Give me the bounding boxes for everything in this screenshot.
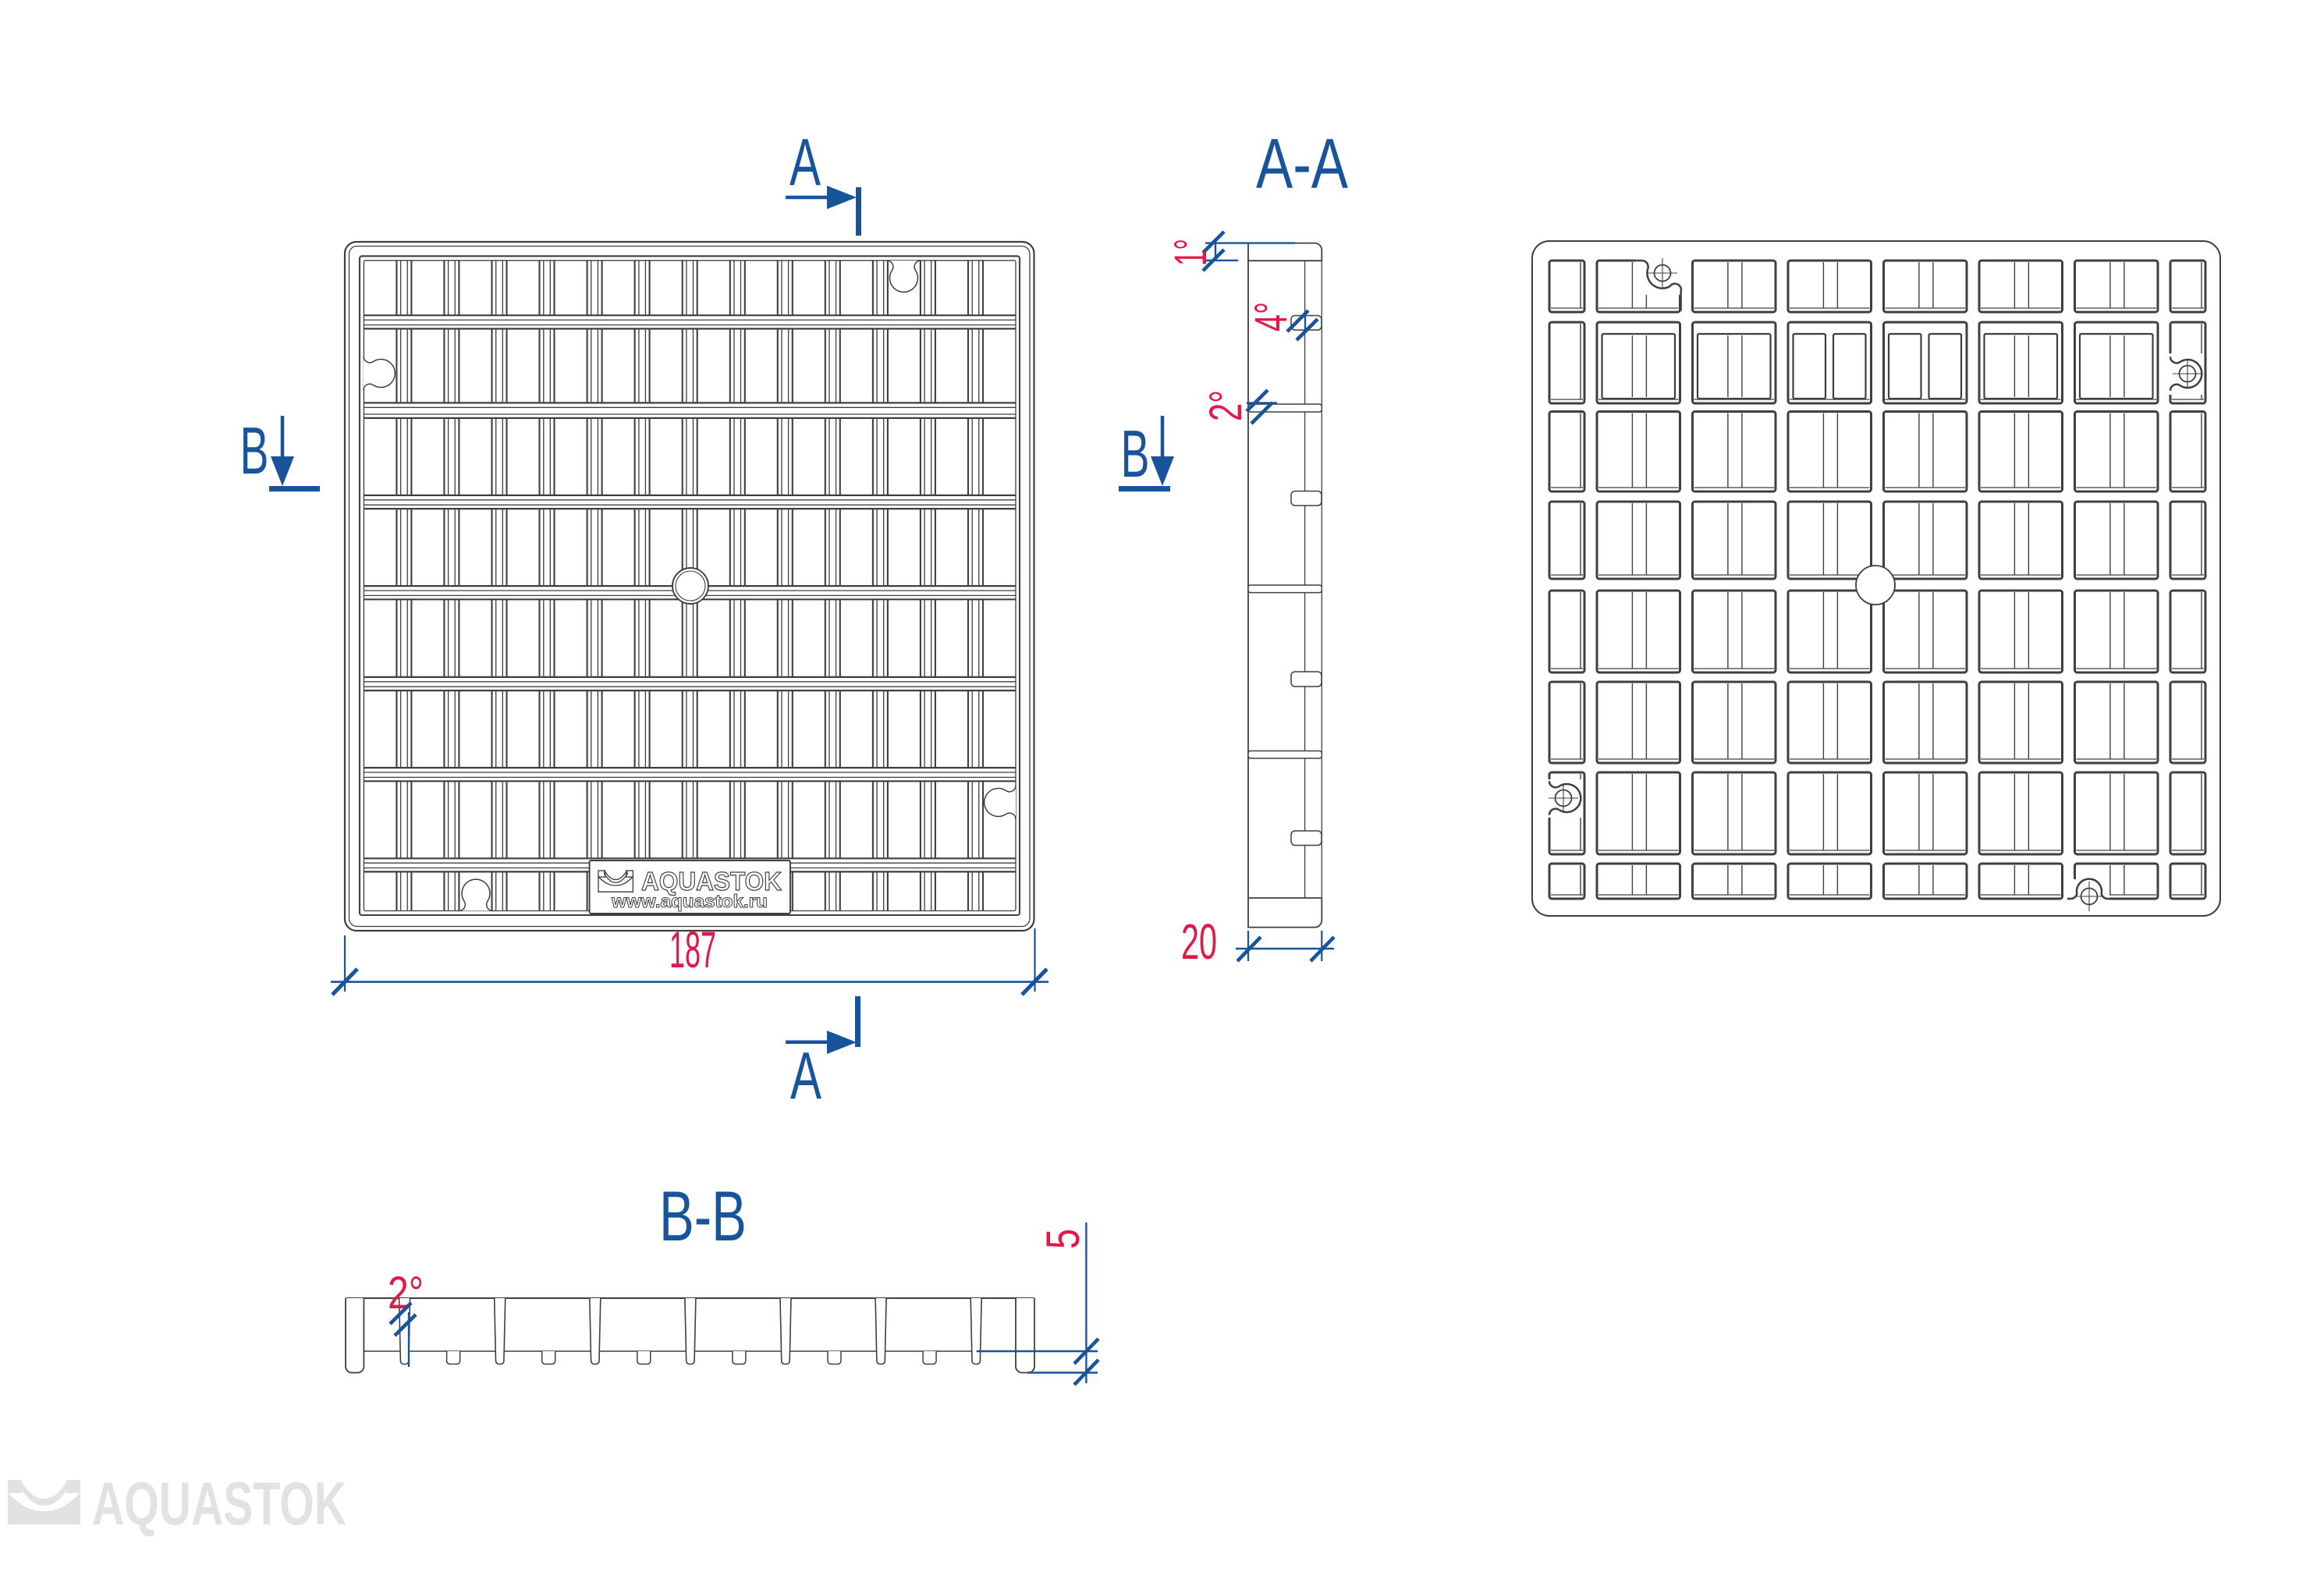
svg-text:B: B bbox=[1121, 417, 1150, 491]
svg-text:B-B: B-B bbox=[659, 1177, 747, 1256]
svg-text:AQUASTOK: AQUASTOK bbox=[92, 1469, 346, 1538]
svg-text:A-A: A-A bbox=[1256, 125, 1348, 204]
svg-text:4°: 4° bbox=[1246, 302, 1297, 332]
svg-text:20: 20 bbox=[1181, 914, 1217, 970]
svg-text:2°: 2° bbox=[1201, 390, 1251, 421]
svg-text:5: 5 bbox=[1037, 1229, 1089, 1249]
svg-text:187: 187 bbox=[669, 921, 716, 978]
svg-text:A: A bbox=[790, 1039, 821, 1113]
svg-text:www.aquastok.ru: www.aquastok.ru bbox=[611, 891, 768, 911]
svg-text:A: A bbox=[789, 126, 821, 200]
svg-text:B: B bbox=[240, 414, 269, 488]
svg-text:1°: 1° bbox=[1166, 239, 1216, 266]
